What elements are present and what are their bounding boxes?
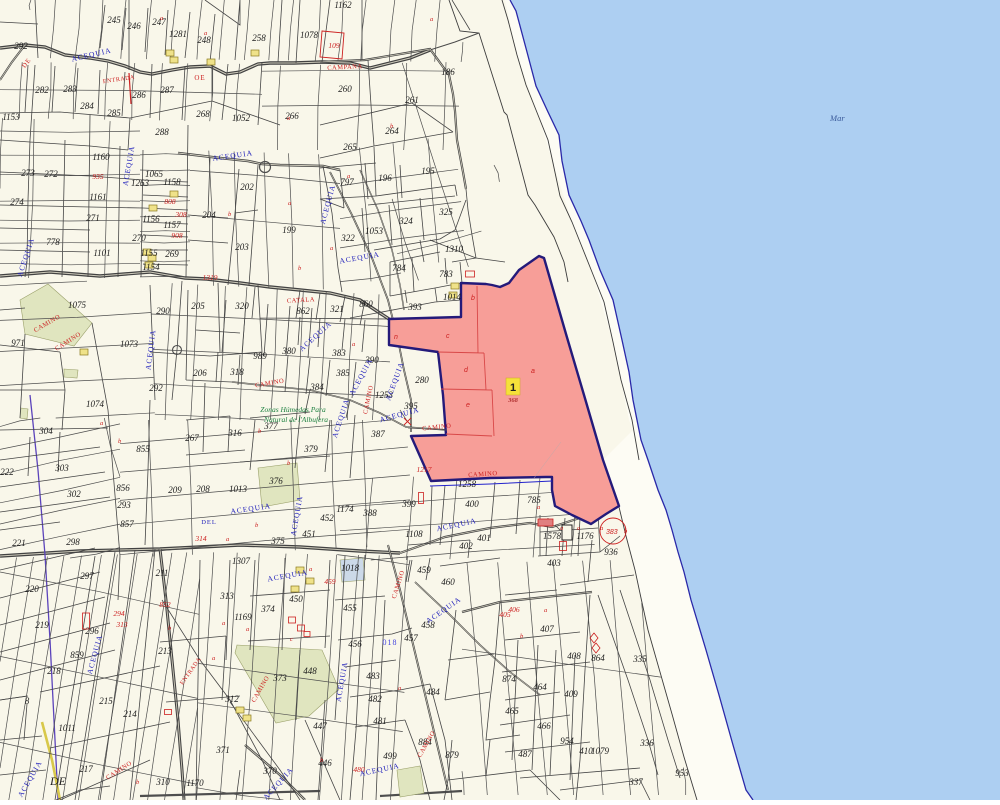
svg-text:283: 283 — [63, 84, 77, 94]
svg-text:385: 385 — [335, 368, 350, 378]
svg-text:388: 388 — [362, 508, 377, 518]
svg-text:399: 399 — [401, 499, 416, 509]
svg-text:482: 482 — [368, 694, 382, 704]
svg-text:a: a — [100, 420, 103, 427]
svg-text:935: 935 — [92, 172, 104, 181]
svg-text:219: 219 — [35, 620, 49, 630]
svg-text:109: 109 — [328, 41, 340, 50]
svg-text:297: 297 — [80, 571, 94, 581]
svg-text:1157: 1157 — [163, 220, 181, 230]
svg-text:195: 195 — [421, 166, 435, 176]
svg-text:1075: 1075 — [68, 300, 87, 310]
svg-text:282: 282 — [35, 85, 49, 95]
svg-text:324: 324 — [398, 216, 413, 226]
svg-text:308: 308 — [174, 210, 187, 219]
svg-text:452: 452 — [320, 513, 334, 523]
svg-text:1174: 1174 — [336, 504, 354, 514]
svg-text:459: 459 — [324, 577, 336, 586]
svg-text:a: a — [577, 525, 580, 532]
svg-text:451: 451 — [302, 529, 316, 539]
svg-text:1281: 1281 — [169, 29, 187, 39]
svg-text:316: 316 — [227, 428, 242, 438]
svg-text:270: 270 — [132, 233, 146, 243]
svg-text:487: 487 — [518, 749, 532, 759]
svg-text:1018: 1018 — [341, 563, 360, 573]
svg-text:268: 268 — [196, 109, 210, 119]
svg-text:374: 374 — [260, 604, 275, 614]
svg-text:936: 936 — [604, 547, 618, 557]
svg-text:1161: 1161 — [89, 192, 106, 202]
svg-text:a: a — [544, 607, 547, 614]
svg-text:202: 202 — [240, 182, 254, 192]
svg-text:322: 322 — [340, 233, 355, 243]
svg-text:273: 273 — [21, 168, 35, 178]
svg-text:379: 379 — [303, 444, 318, 454]
svg-text:464: 464 — [533, 682, 547, 692]
svg-text:a: a — [398, 685, 401, 692]
svg-text:368: 368 — [507, 397, 519, 404]
svg-text:271: 271 — [86, 213, 100, 223]
svg-text:1: 1 — [510, 382, 516, 394]
svg-text:384: 384 — [309, 382, 324, 392]
svg-text:402: 402 — [459, 541, 473, 551]
svg-text:954: 954 — [560, 736, 574, 746]
svg-text:864: 864 — [591, 653, 605, 663]
svg-text:405: 405 — [499, 610, 511, 619]
svg-text:246: 246 — [127, 21, 141, 31]
svg-text:1160: 1160 — [92, 152, 110, 162]
svg-text:859: 859 — [70, 650, 84, 660]
svg-text:a: a — [160, 15, 163, 22]
svg-text:459: 459 — [417, 565, 431, 575]
svg-text:313: 313 — [219, 591, 234, 601]
svg-text:1307: 1307 — [232, 556, 251, 566]
svg-text:1578: 1578 — [543, 531, 562, 541]
svg-text:Natural de l'Albufera: Natural de l'Albufera — [263, 415, 328, 424]
svg-text:e: e — [466, 402, 470, 409]
svg-text:a: a — [226, 536, 229, 543]
svg-text:447: 447 — [313, 721, 327, 731]
svg-text:217: 217 — [79, 764, 93, 774]
svg-text:260: 260 — [338, 84, 352, 94]
svg-text:1013: 1013 — [229, 484, 248, 494]
svg-text:1011: 1011 — [58, 723, 75, 733]
svg-text:1073: 1073 — [120, 339, 139, 349]
svg-text:370: 370 — [262, 766, 277, 776]
svg-text:450: 450 — [289, 594, 303, 604]
svg-text:c: c — [290, 636, 293, 643]
svg-text:373: 373 — [272, 673, 287, 683]
svg-text:293: 293 — [117, 500, 131, 510]
svg-text:778: 778 — [46, 237, 60, 247]
svg-text:Zonas Húmedas Para: Zonas Húmedas Para — [260, 405, 326, 414]
svg-text:288: 288 — [155, 127, 169, 137]
svg-text:409: 409 — [564, 689, 578, 699]
svg-text:290: 290 — [156, 306, 170, 316]
svg-text:274: 274 — [10, 197, 24, 207]
svg-text:403: 403 — [547, 558, 561, 568]
svg-text:213: 213 — [158, 646, 172, 656]
svg-text:a: a — [212, 655, 215, 662]
svg-text:375: 375 — [270, 536, 285, 546]
svg-text:481: 481 — [373, 716, 387, 726]
svg-text:860: 860 — [359, 299, 373, 309]
svg-text:214: 214 — [123, 709, 137, 719]
svg-text:203: 203 — [235, 242, 249, 252]
svg-text:c: c — [446, 333, 450, 340]
svg-text:1153: 1153 — [2, 112, 20, 122]
svg-text:294: 294 — [113, 609, 125, 618]
svg-text:383: 383 — [331, 348, 346, 358]
svg-text:1263: 1263 — [131, 178, 150, 188]
svg-text:a: a — [222, 620, 225, 627]
svg-text:a: a — [531, 368, 535, 375]
svg-text:1053: 1053 — [365, 226, 384, 236]
svg-text:448: 448 — [303, 666, 317, 676]
svg-text:205: 205 — [191, 301, 205, 311]
svg-text:314: 314 — [194, 534, 207, 543]
svg-text:337: 337 — [628, 777, 643, 787]
svg-text:245: 245 — [107, 15, 121, 25]
svg-text:989: 989 — [253, 351, 267, 361]
svg-text:292: 292 — [149, 383, 163, 393]
svg-text:DE: DE — [49, 774, 67, 788]
svg-text:1155: 1155 — [140, 248, 158, 258]
svg-text:1074: 1074 — [86, 399, 105, 409]
svg-text:783: 783 — [439, 269, 453, 279]
svg-text:303: 303 — [54, 463, 69, 473]
svg-text:272: 272 — [44, 169, 58, 179]
svg-text:483: 483 — [366, 671, 380, 681]
svg-text:1319: 1319 — [203, 273, 218, 282]
svg-text:CATALA: CATALA — [287, 296, 315, 304]
svg-text:267: 267 — [185, 433, 199, 443]
svg-text:298: 298 — [66, 537, 80, 547]
svg-text:a: a — [287, 115, 290, 122]
svg-text:a: a — [204, 30, 207, 37]
svg-text:808: 808 — [164, 197, 176, 206]
svg-text:199: 199 — [282, 225, 296, 235]
svg-text:908: 908 — [171, 231, 183, 240]
svg-text:1258: 1258 — [458, 479, 477, 489]
svg-text:874: 874 — [502, 674, 516, 684]
svg-text:953: 953 — [675, 768, 689, 778]
svg-text:211: 211 — [156, 568, 169, 578]
svg-text:285: 285 — [107, 108, 121, 118]
svg-text:862: 862 — [296, 306, 310, 316]
svg-text:269: 269 — [165, 249, 179, 259]
svg-text:1078: 1078 — [300, 30, 319, 40]
svg-text:499: 499 — [383, 751, 397, 761]
svg-text:310: 310 — [155, 777, 170, 787]
svg-text:a: a — [600, 525, 603, 532]
svg-text:407: 407 — [540, 624, 554, 634]
svg-text:a: a — [309, 566, 312, 573]
svg-text:222: 222 — [0, 467, 14, 477]
svg-text:a: a — [430, 16, 433, 23]
svg-text:856: 856 — [116, 483, 130, 493]
svg-text:971: 971 — [11, 338, 25, 348]
svg-text:312: 312 — [224, 694, 239, 704]
svg-text:313: 313 — [115, 620, 128, 629]
svg-text:879: 879 — [445, 750, 459, 760]
svg-text:a: a — [560, 525, 563, 532]
svg-text:466: 466 — [537, 721, 551, 731]
svg-text:455: 455 — [343, 603, 357, 613]
svg-text:1052: 1052 — [232, 113, 251, 123]
svg-text:1169: 1169 — [234, 612, 252, 622]
svg-text:a: a — [246, 626, 249, 633]
svg-text:460: 460 — [441, 577, 455, 587]
svg-text:1176: 1176 — [576, 531, 594, 541]
svg-text:380: 380 — [281, 346, 296, 356]
svg-text:196: 196 — [378, 173, 392, 183]
svg-text:265: 265 — [343, 142, 357, 152]
svg-text:292: 292 — [14, 41, 28, 51]
svg-text:1310: 1310 — [445, 244, 464, 254]
svg-text:855: 855 — [136, 444, 150, 454]
svg-text:220: 220 — [25, 584, 39, 594]
svg-text:457: 457 — [404, 633, 418, 643]
svg-text:a: a — [352, 341, 355, 348]
svg-text:215: 215 — [99, 696, 113, 706]
svg-text:218: 218 — [47, 666, 61, 676]
svg-text:1065: 1065 — [145, 169, 164, 179]
svg-text:336: 336 — [639, 738, 654, 748]
svg-text:Mar: Mar — [829, 113, 845, 123]
svg-text:320: 320 — [234, 301, 249, 311]
svg-text:376: 376 — [268, 476, 283, 486]
svg-text:204: 204 — [202, 210, 216, 220]
svg-text:286: 286 — [132, 90, 146, 100]
svg-text:1154: 1154 — [142, 262, 160, 272]
svg-text:n: n — [394, 334, 398, 341]
svg-text:1079: 1079 — [591, 746, 610, 756]
svg-text:186: 186 — [441, 67, 455, 77]
svg-text:280: 280 — [415, 375, 429, 385]
svg-text:8: 8 — [25, 696, 30, 706]
svg-text:484: 484 — [426, 687, 440, 697]
svg-text:852: 852 — [159, 600, 171, 609]
svg-text:304: 304 — [38, 426, 53, 436]
svg-text:393: 393 — [407, 302, 422, 312]
svg-text:784: 784 — [392, 263, 406, 273]
svg-text:a: a — [537, 504, 540, 511]
svg-text:321: 321 — [329, 304, 344, 314]
svg-text:302: 302 — [66, 489, 81, 499]
svg-text:325: 325 — [438, 207, 453, 217]
svg-text:209: 209 — [168, 485, 182, 495]
svg-text:383: 383 — [606, 529, 618, 536]
svg-text:335: 335 — [632, 654, 647, 664]
svg-text:400: 400 — [465, 499, 479, 509]
svg-text:371: 371 — [215, 745, 230, 755]
svg-text:208: 208 — [196, 484, 210, 494]
svg-text:284: 284 — [80, 101, 94, 111]
svg-text:465: 465 — [505, 706, 519, 716]
svg-text:1101: 1101 — [93, 248, 110, 258]
svg-text:1108: 1108 — [405, 529, 423, 539]
svg-text:b: b — [471, 295, 475, 302]
svg-text:261: 261 — [405, 95, 419, 105]
svg-text:a: a — [288, 200, 291, 207]
svg-text:a: a — [347, 173, 350, 180]
svg-text:1217: 1217 — [417, 465, 432, 474]
svg-text:258: 258 — [252, 33, 266, 43]
svg-text:287: 287 — [160, 85, 174, 95]
svg-text:387: 387 — [370, 429, 385, 439]
svg-text:318: 318 — [229, 367, 244, 377]
svg-text:DEL: DEL — [201, 519, 217, 526]
svg-text:456: 456 — [348, 639, 362, 649]
svg-text:1162: 1162 — [334, 0, 352, 10]
svg-text:OE: OE — [194, 74, 205, 82]
svg-text:1014: 1014 — [443, 292, 462, 302]
svg-text:221: 221 — [12, 538, 26, 548]
svg-text:1156: 1156 — [142, 214, 160, 224]
svg-text:401: 401 — [477, 533, 491, 543]
svg-text:a: a — [330, 245, 333, 252]
svg-text:1170: 1170 — [186, 778, 204, 788]
svg-text:018: 018 — [383, 638, 398, 647]
svg-text:206: 206 — [193, 368, 207, 378]
svg-text:408: 408 — [567, 651, 581, 661]
svg-text:857: 857 — [120, 519, 134, 529]
svg-text:1158: 1158 — [163, 177, 181, 187]
